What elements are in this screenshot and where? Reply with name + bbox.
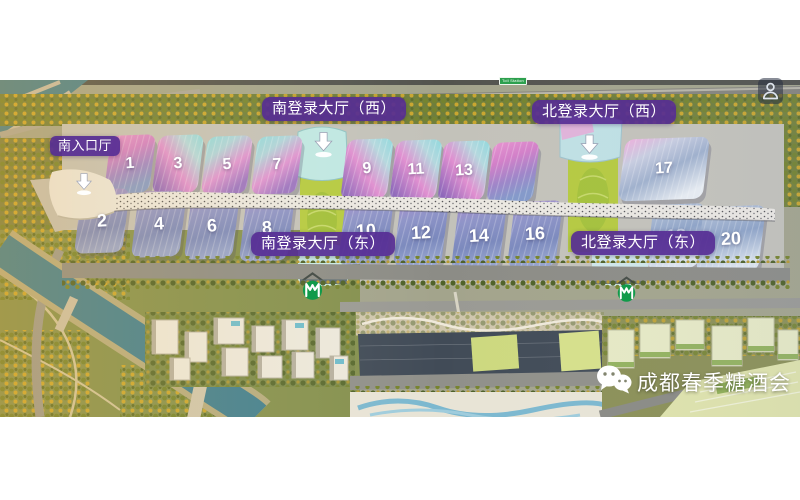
metro-station-south [301, 271, 324, 307]
down-arrow-icon [74, 183, 94, 200]
metro-icon [616, 291, 637, 308]
watermark-text: 成都春季糖酒会 [637, 367, 791, 397]
label-south-login-hall-west[interactable]: 南登录大厅（西） [262, 97, 406, 121]
expo-map-screenshot: 201816141210864217131197531Toll Station [0, 0, 800, 500]
metro-station-north [616, 275, 637, 309]
north-login-west-marker[interactable] [578, 133, 601, 166]
label-south-login-hall-east[interactable]: 南登录大厅（东） [251, 232, 395, 256]
label-north-login-hall-west[interactable]: 北登录大厅（西） [532, 100, 676, 124]
south-login-west-marker[interactable] [312, 131, 335, 163]
metro-icon [301, 289, 324, 306]
wechat-icon [596, 364, 632, 399]
person-icon [758, 91, 783, 108]
wechat-watermark: 成都春季糖酒会 [596, 364, 791, 399]
label-south-entrance-hall[interactable]: 南入口厅 [50, 136, 120, 156]
label-north-login-hall-east[interactable]: 北登录大厅（东） [571, 231, 715, 255]
south-entrance-marker[interactable] [74, 172, 94, 201]
toll-station-sign: Toll Station [499, 77, 527, 85]
person-view-button[interactable] [758, 78, 783, 109]
down-arrow-icon [312, 145, 335, 162]
down-arrow-icon [578, 148, 601, 165]
